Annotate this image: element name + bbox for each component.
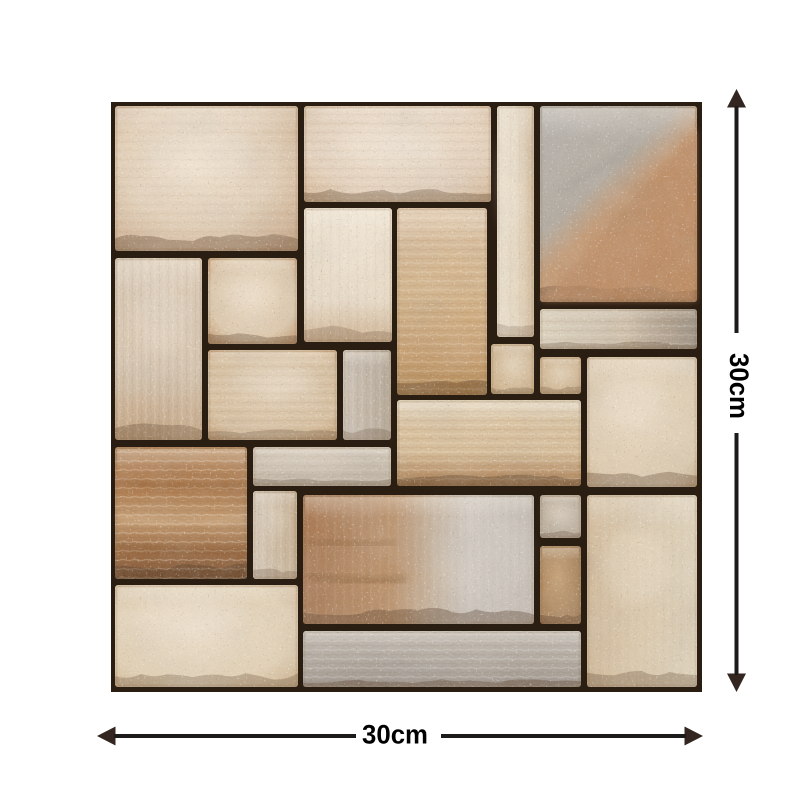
- svg-text:30cm: 30cm: [724, 353, 754, 419]
- svg-text:30cm: 30cm: [362, 720, 428, 750]
